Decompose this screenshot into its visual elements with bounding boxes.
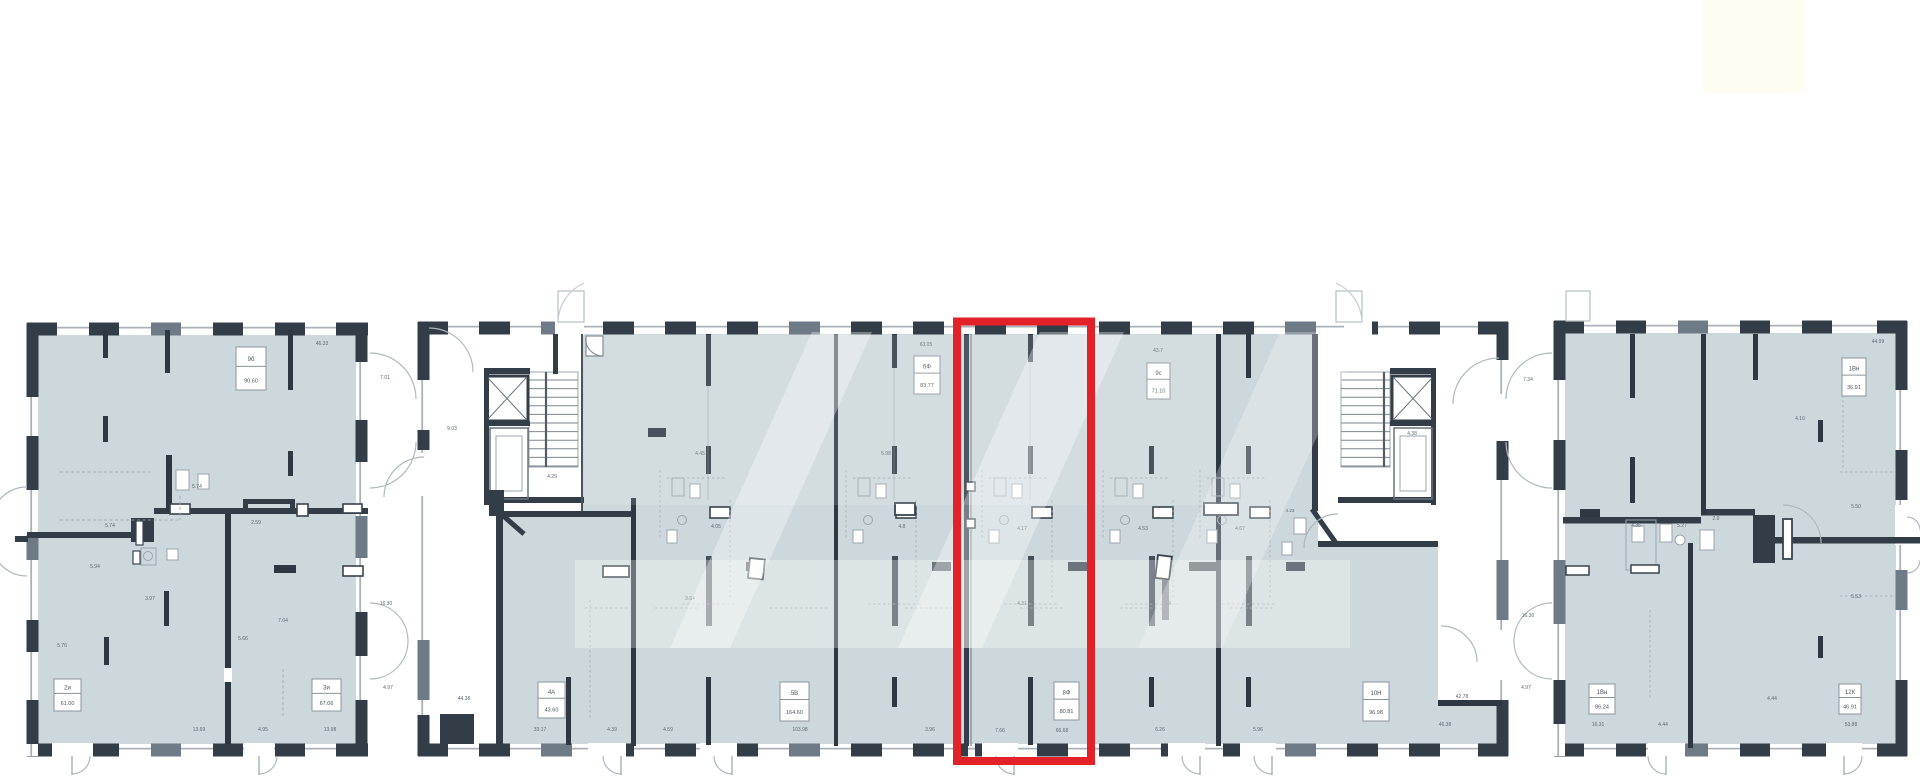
svg-text:4А: 4А: [548, 690, 555, 696]
svg-text:13.98: 13.98: [324, 727, 337, 733]
svg-text:80.81: 80.81: [1060, 709, 1074, 715]
svg-text:4.53: 4.53: [1138, 526, 1148, 532]
svg-text:46.91: 46.91: [1843, 705, 1857, 711]
svg-text:5.66: 5.66: [238, 636, 248, 642]
svg-text:44.99: 44.99: [1872, 339, 1885, 345]
svg-text:9б: 9б: [248, 357, 255, 363]
svg-text:5.27: 5.27: [1677, 523, 1687, 529]
svg-text:33.17: 33.17: [534, 727, 547, 733]
svg-text:36.91: 36.91: [1847, 385, 1861, 391]
svg-text:16.30: 16.30: [380, 601, 393, 607]
svg-text:7.04: 7.04: [278, 618, 288, 624]
svg-text:4.10: 4.10: [1795, 416, 1805, 422]
svg-text:3.96: 3.96: [925, 727, 935, 733]
svg-text:61.00: 61.00: [61, 701, 75, 707]
svg-text:46.38: 46.38: [1439, 722, 1452, 728]
svg-text:90.60: 90.60: [244, 378, 258, 384]
svg-text:12К: 12К: [1845, 690, 1856, 696]
svg-text:16.31: 16.31: [1592, 722, 1605, 728]
svg-text:4.8: 4.8: [899, 524, 906, 530]
svg-text:13.69: 13.69: [193, 727, 206, 733]
svg-text:4.38: 4.38: [1407, 431, 1417, 437]
svg-text:3и: 3и: [323, 686, 330, 692]
svg-text:3.97: 3.97: [145, 596, 155, 602]
svg-text:42.78: 42.78: [1456, 694, 1469, 700]
svg-text:4.29: 4.29: [547, 474, 557, 480]
svg-text:8Ф: 8Ф: [1063, 691, 1071, 697]
svg-text:4.44: 4.44: [1767, 696, 1777, 702]
svg-text:86.24: 86.24: [1595, 705, 1609, 711]
svg-text:96.98: 96.98: [1369, 710, 1383, 716]
svg-text:46.33: 46.33: [316, 341, 329, 347]
svg-text:43.60: 43.60: [545, 708, 559, 714]
svg-text:4.97: 4.97: [1521, 685, 1531, 691]
svg-text:4.05: 4.05: [711, 524, 721, 530]
svg-text:9.03: 9.03: [447, 426, 457, 432]
svg-text:7.34: 7.34: [1523, 377, 1533, 383]
svg-text:16.30: 16.30: [1522, 613, 1535, 619]
svg-text:1Вн: 1Вн: [1597, 690, 1608, 696]
svg-text:44.38: 44.38: [458, 696, 471, 702]
svg-text:5.96: 5.96: [1253, 727, 1263, 733]
svg-text:5.74: 5.74: [192, 484, 202, 490]
svg-text:2.9: 2.9: [1713, 516, 1720, 522]
svg-text:7.01: 7.01: [380, 375, 390, 381]
svg-text:5В: 5В: [791, 691, 798, 697]
svg-text:6.26: 6.26: [1155, 727, 1165, 733]
svg-text:4.59: 4.59: [663, 727, 673, 733]
svg-text:5.50: 5.50: [1851, 504, 1861, 510]
svg-text:4.39: 4.39: [607, 727, 617, 733]
svg-text:4.95: 4.95: [258, 727, 268, 733]
svg-text:10Н: 10Н: [1370, 691, 1381, 697]
svg-text:4.97: 4.97: [383, 685, 393, 691]
svg-text:5.74: 5.74: [105, 523, 115, 529]
svg-text:4.23: 4.23: [1286, 508, 1295, 513]
svg-text:2и: 2и: [64, 686, 71, 692]
svg-text:5.53: 5.53: [1851, 594, 1861, 600]
svg-text:53.88: 53.88: [1845, 722, 1858, 728]
svg-text:2.59: 2.59: [251, 520, 261, 526]
svg-text:4.36: 4.36: [1631, 523, 1641, 529]
svg-text:5.94: 5.94: [90, 564, 100, 570]
svg-text:5.76: 5.76: [57, 643, 67, 649]
svg-text:103.98: 103.98: [792, 727, 808, 733]
svg-text:66.68: 66.68: [1056, 728, 1069, 734]
svg-text:67.06: 67.06: [320, 701, 334, 707]
svg-text:4.44: 4.44: [1658, 722, 1668, 728]
svg-text:164.60: 164.60: [786, 710, 803, 716]
svg-text:1Вн: 1Вн: [1849, 367, 1860, 373]
svg-text:7.66: 7.66: [995, 728, 1005, 734]
